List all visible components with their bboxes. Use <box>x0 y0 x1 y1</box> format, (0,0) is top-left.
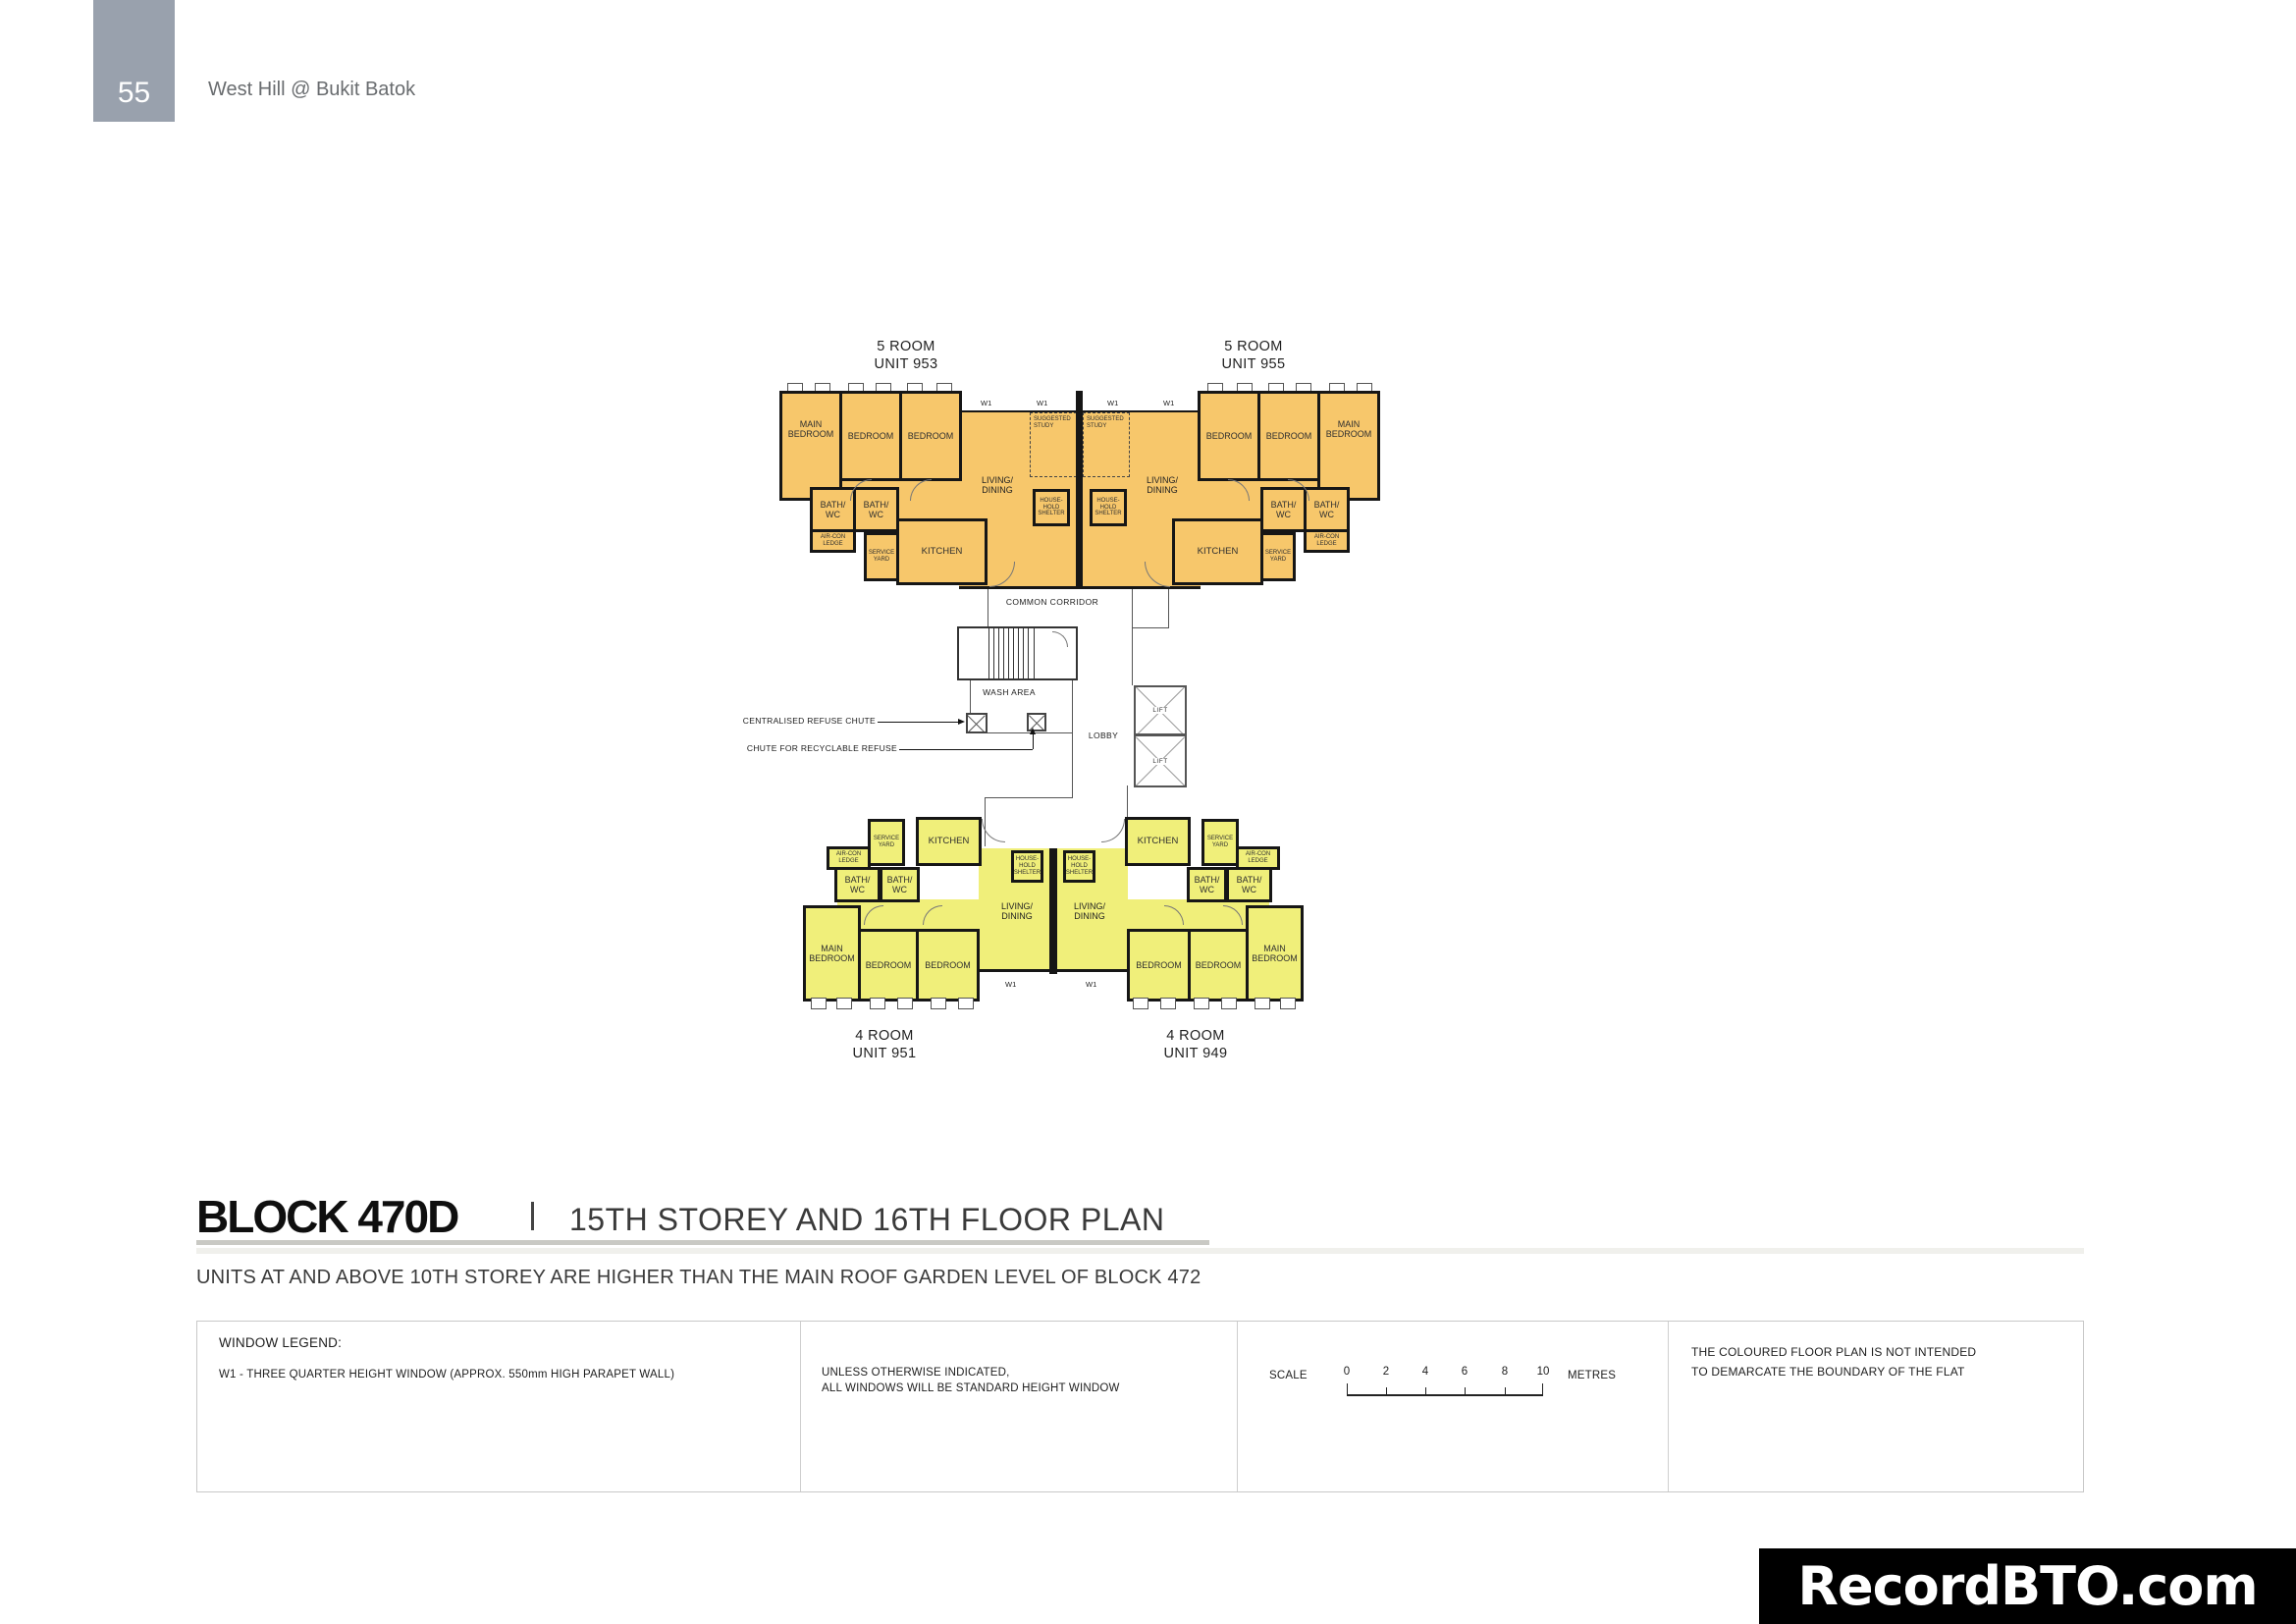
room-service-yard: SERVICE YARD <box>864 532 899 581</box>
window-tick <box>958 998 974 1009</box>
unit-955-plan: MAIN BEDROOM BEDROOM BEDROOM BATH/ WC BA… <box>1080 377 1382 605</box>
window-legend-title: WINDOW LEGEND: <box>219 1335 342 1350</box>
room-living-dining-label: LIVING/ DINING <box>966 475 1029 496</box>
scale-tick-label: 6 <box>1453 1366 1476 1378</box>
room-bedroom: BEDROOM <box>839 391 902 481</box>
window-tick <box>1255 998 1270 1009</box>
room-bath-wc: BATH/ WC <box>880 867 920 902</box>
window-tick <box>1280 998 1296 1009</box>
room-bath-wc: BATH/ WC <box>810 487 856 532</box>
door-arc <box>1052 631 1068 647</box>
title-separator <box>531 1202 534 1230</box>
recyclable-refuse-chute-callout: CHUTE FOR RECYCLABLE REFUSE <box>728 743 897 753</box>
suggested-study-outline: SUGGESTED STUDY <box>1030 412 1077 477</box>
scale-tick <box>1386 1387 1387 1394</box>
legend-box: WINDOW LEGEND: W1 - THREE QUARTER HEIGHT… <box>196 1321 2084 1492</box>
room-service-yard: SERVICE YARD <box>868 819 905 866</box>
page-number-tab: 55 <box>93 0 175 122</box>
room-living-dining-label: LIVING/ DINING <box>1058 901 1121 922</box>
room-living-dining-label: LIVING/ DINING <box>986 901 1048 922</box>
scale-label: SCALE <box>1269 1370 1308 1381</box>
lift-label: LIFT <box>1151 758 1168 765</box>
lift-label: LIFT <box>1151 707 1168 714</box>
block-title: BLOCK 470D <box>196 1190 457 1243</box>
window-w1-label: W1 <box>1086 980 1101 989</box>
window-tick <box>870 998 885 1009</box>
unit-number: UNIT 953 <box>842 355 970 373</box>
scale-tick <box>1425 1387 1426 1394</box>
room-bedroom: BEDROOM <box>1257 391 1320 481</box>
common-corridor-label: COMMON CORRIDOR <box>993 597 1111 607</box>
room-bedroom: BEDROOM <box>899 391 962 481</box>
window-note-line1: UNLESS OTHERWISE INDICATED, <box>822 1367 1010 1379</box>
lift-icon: LIFT <box>1134 734 1187 787</box>
unit-953-plan: MAIN BEDROOM BEDROOM BEDROOM BATH/ WC BA… <box>777 377 1080 605</box>
room-household-shelter: HOUSE- HOLD SHELTER <box>1011 850 1043 883</box>
unit-type: 5 ROOM <box>842 338 970 355</box>
scale-tick <box>1465 1387 1466 1394</box>
room-kitchen: KITCHEN <box>1172 518 1263 585</box>
room-household-shelter: HOUSE- HOLD SHELTER <box>1090 489 1127 526</box>
window-note-line2: ALL WINDOWS WILL BE STANDARD HEIGHT WIND… <box>822 1382 1120 1394</box>
unit-type: 5 ROOM <box>1190 338 1317 355</box>
leader-line <box>1033 733 1034 749</box>
heading-underline <box>196 1240 1209 1245</box>
room-main-bedroom: MAIN BEDROOM <box>1317 391 1380 501</box>
scale-bar <box>1347 1394 1543 1396</box>
room-living-dining-label: LIVING/ DINING <box>1131 475 1194 496</box>
scale-tick <box>1542 1383 1543 1394</box>
window-w1-label: W1 <box>981 399 996 407</box>
unit-label-955: 5 ROOM UNIT 955 <box>1190 338 1317 373</box>
window-w1-label: W1 <box>1037 399 1052 407</box>
room-bedroom: BEDROOM <box>858 929 919 1001</box>
room-aircon-ledge: AIR-CON LEDGE <box>1304 529 1350 553</box>
party-wall <box>1049 848 1057 974</box>
room-kitchen: KITCHEN <box>1125 817 1191 866</box>
door-arc <box>1101 819 1125 842</box>
plan-note: UNITS AT AND ABOVE 10TH STOREY ARE HIGHE… <box>196 1267 1201 1289</box>
arrow-up-icon <box>1030 728 1036 734</box>
wash-area-label: WASH AREA <box>982 687 1037 697</box>
scale-unit: METRES <box>1568 1370 1616 1381</box>
room-kitchen: KITCHEN <box>896 518 988 585</box>
door-arc <box>982 819 1005 842</box>
unit-949-plan: KITCHEN SERVICE YARD AIR-CON LEDGE BATH/… <box>1053 817 1304 1025</box>
party-wall <box>1076 391 1083 589</box>
lift-icon: LIFT <box>1134 685 1187 735</box>
room-bath-wc: BATH/ WC <box>1304 487 1350 532</box>
legend-divider <box>1237 1322 1238 1491</box>
unit-number: UNIT 951 <box>821 1045 948 1062</box>
corridor-line <box>1168 589 1169 628</box>
scale-tick-label: 8 <box>1493 1366 1517 1378</box>
room-household-shelter: HOUSE- HOLD SHELTER <box>1063 850 1095 883</box>
room-household-shelter: HOUSE- HOLD SHELTER <box>1033 489 1070 526</box>
room-bedroom: BEDROOM <box>1198 391 1260 481</box>
centralised-refuse-chute-callout: CENTRALISED REFUSE CHUTE <box>726 716 876 726</box>
unit-type: 4 ROOM <box>1132 1027 1259 1045</box>
storey-title: 15TH STOREY AND 16TH FLOOR PLAN <box>569 1202 1165 1238</box>
window-tick <box>897 998 913 1009</box>
room-service-yard: SERVICE YARD <box>1201 819 1239 866</box>
corridor-line <box>988 589 988 626</box>
window-w1-label: W1 <box>1163 399 1179 407</box>
watermark: RecordBTO.com <box>1759 1548 2296 1624</box>
room-bath-wc: BATH/ WC <box>1187 867 1227 902</box>
unit-951-plan: KITCHEN SERVICE YARD AIR-CON LEDGE BATH/… <box>803 817 1053 1025</box>
leader-line <box>899 749 1033 750</box>
project-title: West Hill @ Bukit Batok <box>208 79 415 101</box>
window-tick <box>1160 998 1176 1009</box>
heading-underline-light <box>196 1248 2084 1254</box>
unit-number: UNIT 955 <box>1190 355 1317 373</box>
window-tick <box>1194 998 1209 1009</box>
corridor-line <box>1072 680 1073 798</box>
unit-number: UNIT 949 <box>1132 1045 1259 1062</box>
window-tick <box>1221 998 1237 1009</box>
centralised-refuse-chute-icon <box>966 713 988 733</box>
room-main-bedroom: MAIN BEDROOM <box>779 391 842 501</box>
room-bedroom: BEDROOM <box>1188 929 1249 1001</box>
corridor-line <box>1132 589 1133 685</box>
lobby-label: LOBBY <box>1080 731 1127 740</box>
scale-tick-label: 4 <box>1414 1366 1437 1378</box>
unit-label-951: 4 ROOM UNIT 951 <box>821 1027 948 1062</box>
room-service-yard: SERVICE YARD <box>1260 532 1296 581</box>
scale-tick-label: 10 <box>1531 1366 1555 1378</box>
room-bedroom: BEDROOM <box>1127 929 1191 1001</box>
brochure-page: 55 West Hill @ Bukit Batok 5 ROOM UNIT 9… <box>0 0 2296 1624</box>
corridor-line <box>1132 627 1169 628</box>
legend-divider <box>800 1322 801 1491</box>
suggested-study-outline: SUGGESTED STUDY <box>1083 412 1130 477</box>
unit-label-953: 5 ROOM UNIT 953 <box>842 338 970 373</box>
window-w1-label: W1 <box>1107 399 1123 407</box>
leader-line <box>878 722 958 723</box>
corridor-line <box>985 797 1073 798</box>
unit-label-949: 4 ROOM UNIT 949 <box>1132 1027 1259 1062</box>
window-w1-label: W1 <box>1005 980 1021 989</box>
watermark-text: RecordBTO.com <box>1797 1555 2257 1617</box>
window-tick <box>1133 998 1148 1009</box>
room-aircon-ledge: AIR-CON LEDGE <box>810 529 856 553</box>
legend-divider <box>1668 1322 1669 1491</box>
room-kitchen: KITCHEN <box>916 817 982 866</box>
window-legend-item: W1 - THREE QUARTER HEIGHT WINDOW (APPROX… <box>219 1369 674 1380</box>
boundary-note-line1: THE COLOURED FLOOR PLAN IS NOT INTENDED <box>1691 1345 1976 1359</box>
scale-tick-label: 2 <box>1374 1366 1398 1378</box>
room-bath-wc: BATH/ WC <box>834 867 881 902</box>
window-tick <box>931 998 946 1009</box>
room-main-bedroom: MAIN BEDROOM <box>803 905 861 1001</box>
room-main-bedroom: MAIN BEDROOM <box>1246 905 1304 1001</box>
boundary-note-line2: TO DEMARCATE THE BOUNDARY OF THE FLAT <box>1691 1365 1965 1379</box>
arrow-right-icon <box>958 719 965 725</box>
window-tick <box>836 998 852 1009</box>
room-bath-wc: BATH/ WC <box>1226 867 1272 902</box>
page-number: 55 <box>118 77 150 110</box>
scale-tick <box>1347 1383 1348 1394</box>
scale-tick-label: 0 <box>1335 1366 1359 1378</box>
window-tick <box>811 998 827 1009</box>
room-bedroom: BEDROOM <box>916 929 980 1001</box>
scale-tick <box>1505 1387 1506 1394</box>
staircase-icon <box>957 626 1078 680</box>
unit-type: 4 ROOM <box>821 1027 948 1045</box>
